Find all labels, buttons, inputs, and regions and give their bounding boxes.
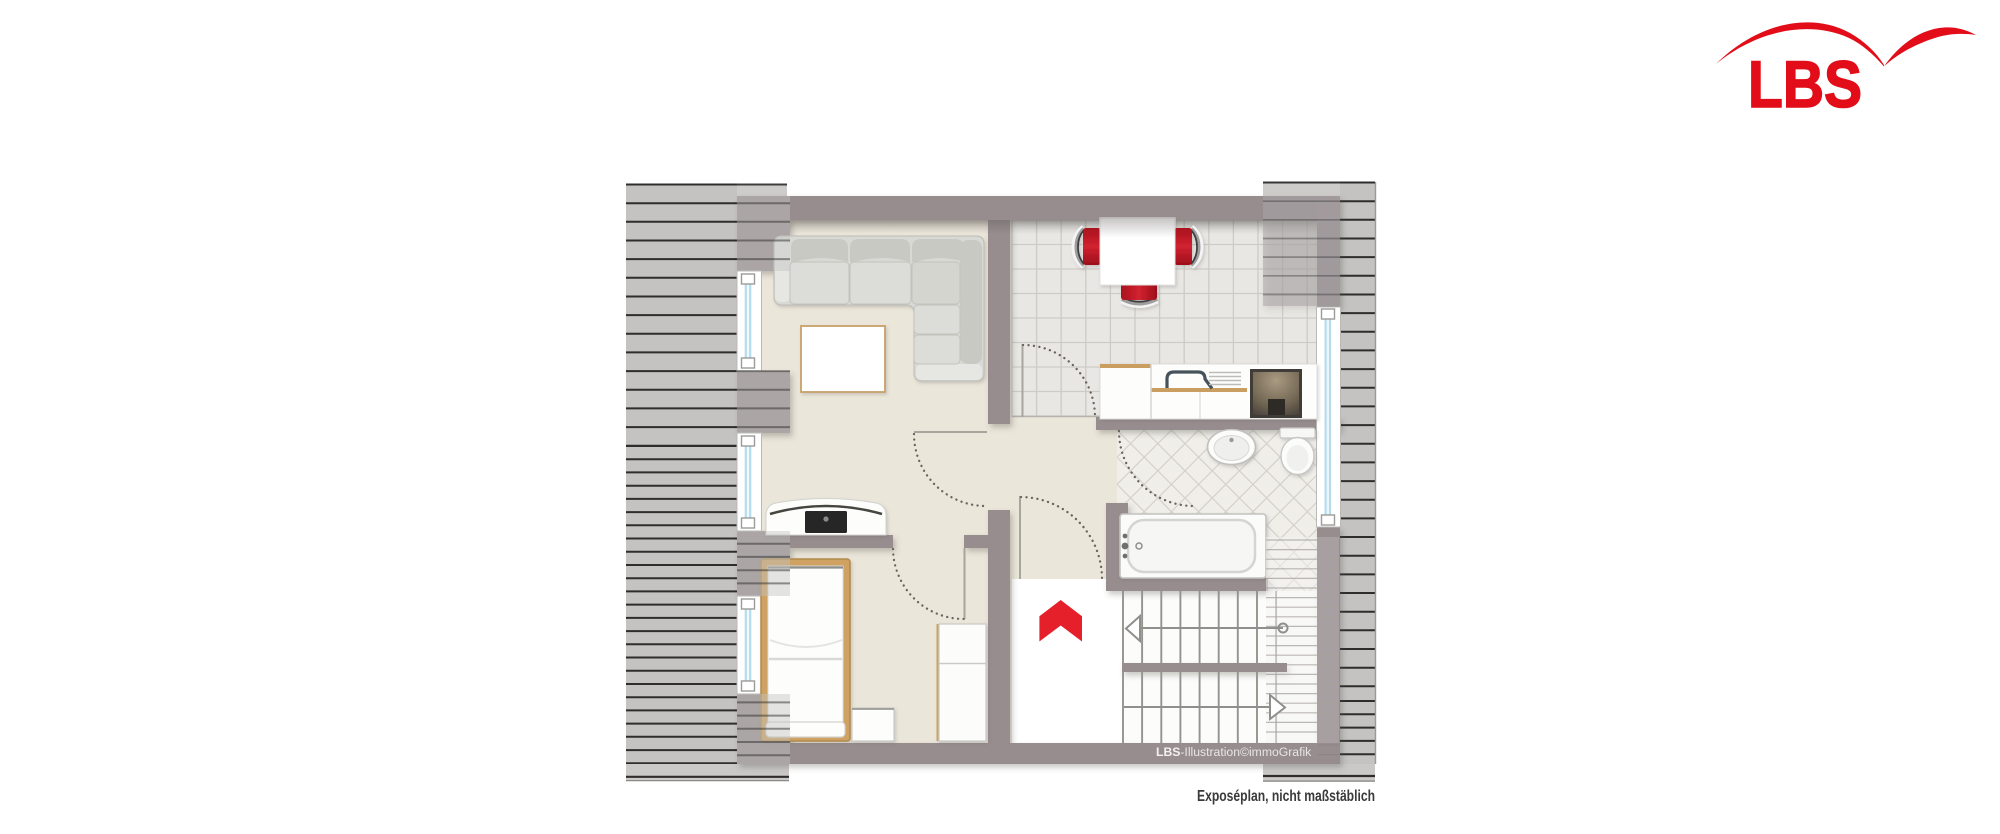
svg-text:LBS-Illustration©immoGrafik: LBS-Illustration©immoGrafik bbox=[1156, 745, 1312, 759]
svg-text:LBS: LBS bbox=[1748, 47, 1862, 121]
svg-text:Exposéplan, nicht maßstäblich: Exposéplan, nicht maßstäblich bbox=[1197, 788, 1375, 805]
